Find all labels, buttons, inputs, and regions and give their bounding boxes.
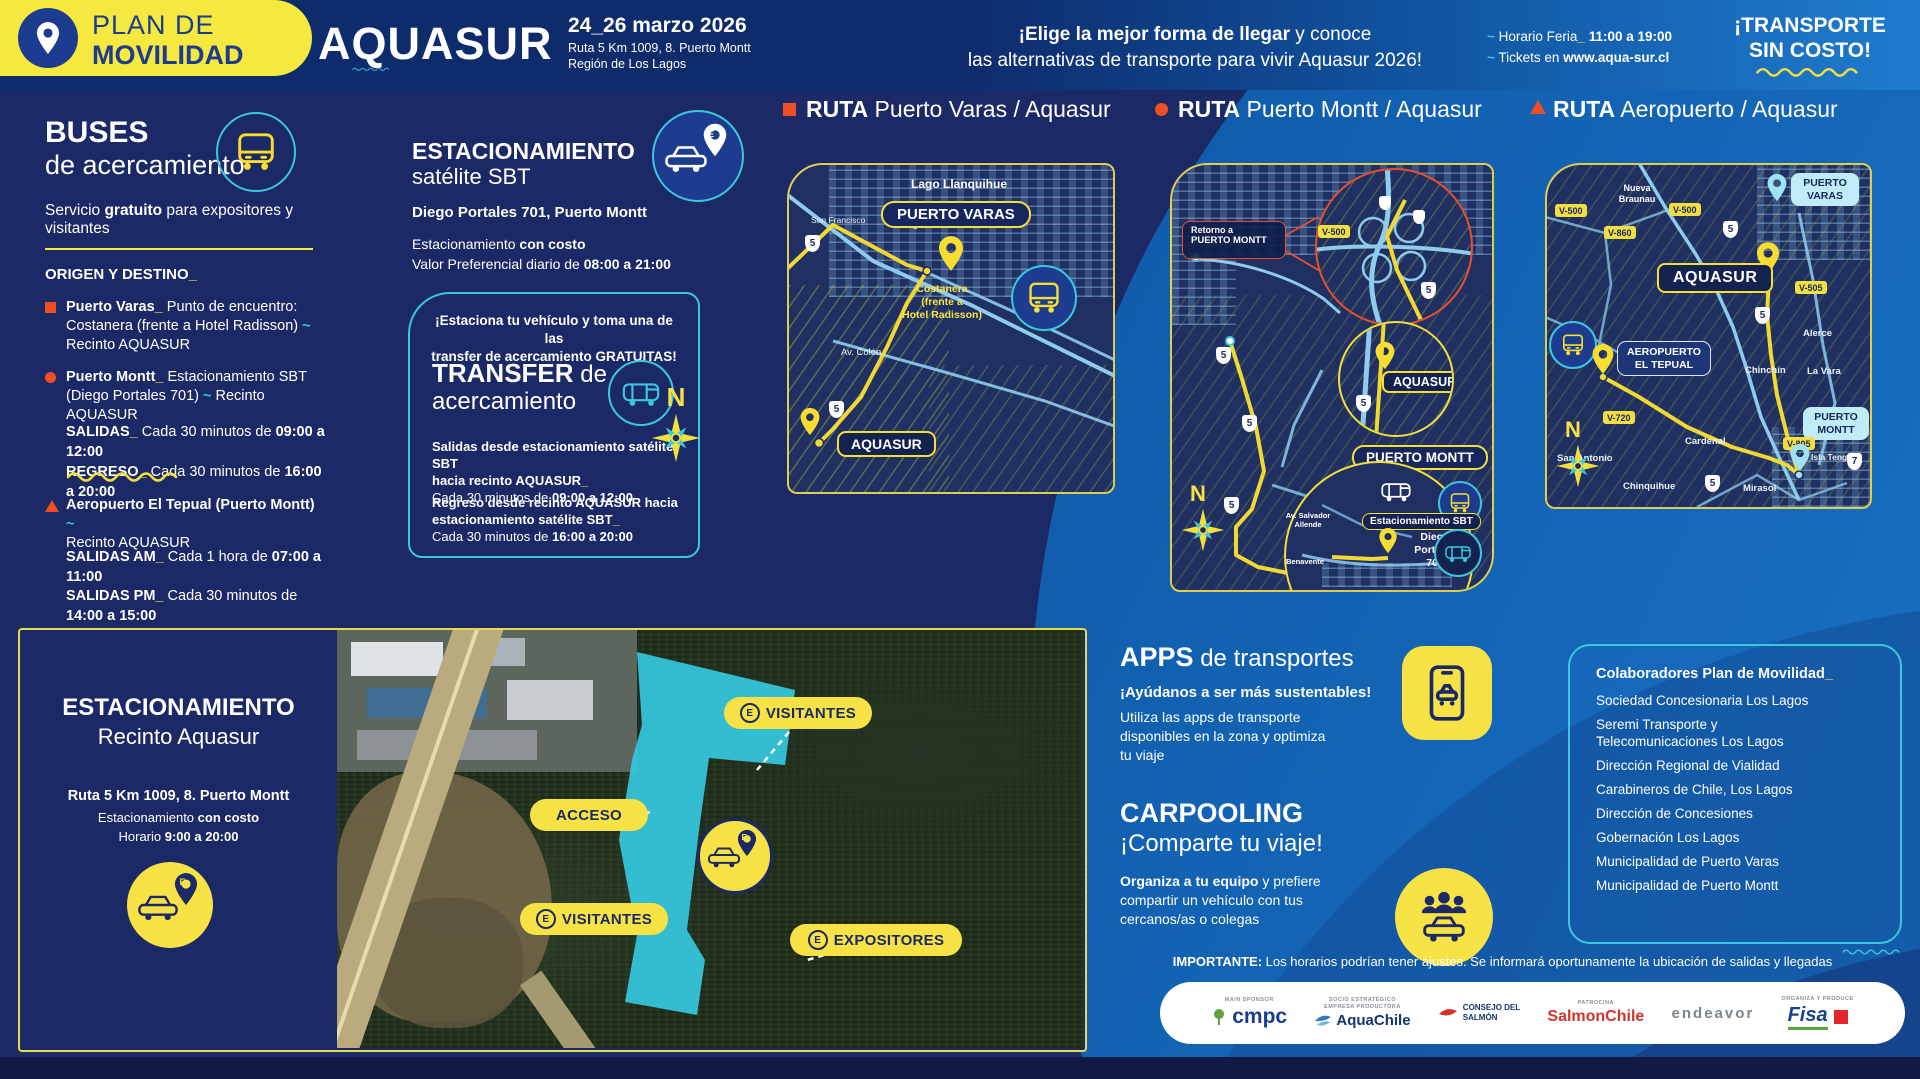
tilde: ~ (1487, 29, 1495, 44)
ap-2: EL TEPUAL (1635, 359, 1693, 371)
badge-line1: PLAN DE (92, 10, 215, 41)
transfer-title: TRANSFER de (432, 358, 607, 389)
sponsor-cmpc: MAIN SPONSOR cmpc (1211, 997, 1287, 1030)
sponsor-label: ORGANIZA Y PRODUCE (1782, 996, 1854, 1003)
carpool-icon (1395, 868, 1493, 966)
carp-bold: Organiza a tu equipo (1120, 873, 1258, 889)
buses-item-puerto-varas: Puerto Varas_ Punto de encuentro: Costan… (66, 298, 318, 355)
buses-schedule-1: SALIDAS_ Cada 30 minutos de 09:00 a 12:0… (66, 422, 326, 502)
map1-aquasur-pin-icon (799, 407, 821, 436)
pm-name: Puerto Montt (66, 369, 155, 385)
svc-pre: Servicio (45, 202, 104, 219)
tickets-url[interactable]: www.aqua-sur.cl (1563, 50, 1669, 65)
brand-wave-icon (352, 64, 392, 74)
transfer-de: de (574, 361, 607, 388)
bus-icon (216, 112, 296, 192)
park-subtitle: satélite SBT (412, 164, 531, 190)
tree-icon (1211, 1008, 1227, 1026)
compass-rose-icon (650, 412, 702, 464)
map1-puerto-varas-pill: PUERTO VARAS (881, 201, 1031, 228)
underscore: _ (130, 424, 138, 440)
tilde: ~ (302, 318, 310, 334)
s2-time: 16:00 a 20:00 (552, 529, 633, 544)
list-item: Municipalidad de Puerto Varas (1596, 853, 1874, 870)
salidas-pm-text: Cada 30 minutos de (164, 588, 298, 604)
carpooling-body: Organiza a tu equipo y prefiere comparti… (1120, 872, 1370, 929)
list-item: Dirección Regional de Vialidad (1596, 757, 1874, 774)
transfer-sched-2: Regreso desde recinto AQUASUR hacia esta… (432, 494, 682, 545)
costanera-1: Costanera (916, 283, 967, 295)
map1-compass-n: N (648, 382, 704, 413)
route2-header: RUTA Puerto Montt / Aquasur (1178, 96, 1482, 123)
hor-bold: 9:00 a 20:00 (165, 829, 239, 844)
map3-cardenal: Cardenal (1685, 436, 1726, 447)
event-address-2: Región de Los Lagos (568, 57, 686, 71)
map1-aquasur-pill: AQUASUR (837, 431, 936, 457)
horario-label: Horario Feria (1495, 29, 1578, 44)
event-date: 24_26 marzo 2026 (568, 14, 747, 38)
recinto-cost: Estacionamiento con costo (20, 810, 337, 825)
underscore: _ (155, 588, 163, 604)
colab-title-text: Colaboradores Plan de Movilidad (1596, 666, 1825, 682)
s2-line2: estacionamiento satélite SBT (432, 512, 613, 527)
map3-compass-n: N (1565, 417, 1581, 443)
apps-title: APPS de transportes (1120, 642, 1354, 673)
ruta2-name: Puerto Montt / Aquasur (1240, 96, 1482, 122)
map2-allende-label: Av. SalvadorAllende (1276, 511, 1340, 529)
map3-puerto-varas-pill: PUERTOVARAS (1791, 173, 1859, 206)
underscore: _ (189, 266, 197, 283)
s1-line2: hacia recinto AQUASUR (432, 473, 581, 488)
park-price: Valor Preferencial diario de 08:00 a 21:… (412, 256, 671, 272)
map3-aeropuerto-pill: AEROPUERTOEL TEPUAL (1617, 341, 1711, 376)
compass-rose-icon (1555, 443, 1601, 489)
map3-alerce: Alerce (1803, 328, 1832, 339)
footer-bar (0, 1057, 1920, 1079)
map2-compass-n: N (1190, 481, 1206, 507)
tagline-bold: ¡Elige la mejor forma de llegar (1019, 24, 1290, 45)
map1-costanera-label: Costanera(frente aHotel Radisson) (887, 283, 997, 322)
tilde: ~ (66, 516, 74, 532)
carpooling-title: CARPOOLING (1120, 798, 1303, 829)
parking-e: E (742, 833, 747, 842)
sponsor-strip: MAIN SPONSOR cmpc SOCIO ESTRATÉGICOEMPRE… (1160, 982, 1905, 1044)
costanera-2: (frente a (921, 296, 962, 308)
free-transport-banner: ¡TRANSPORTE SIN COSTO! (1710, 13, 1910, 63)
wavy-underline-icon (1738, 66, 1883, 77)
list-item: Carabineros de Chile, Los Lagos (1596, 781, 1874, 798)
header-info: ~ Horario Feria_ 11:00 a 19:00 ~ Tickets… (1487, 26, 1672, 68)
e-circle-icon: E (536, 909, 556, 929)
ap-1: AEROPUERTO (1627, 346, 1701, 358)
event-address-1: Ruta 5 Km 1009, 8. Puerto Montt (568, 41, 751, 55)
map1-san-francisco: San Francisco (811, 215, 865, 225)
hor-pre: Horario (119, 829, 165, 844)
route3-header: RUTA Aeropuerto / Aquasur (1553, 96, 1838, 123)
map-puerto-varas: Lago Llanquihue PUERTO VARAS Costanera(f… (787, 163, 1115, 494)
consejo-2: SALMÓN (1463, 1013, 1498, 1022)
underscore: _ (155, 299, 163, 315)
fish-icon (1314, 1013, 1332, 1029)
route1-bullet (783, 103, 796, 116)
apps-b3: tu viaje (1120, 747, 1164, 763)
tickets-label: Tickets en (1495, 50, 1563, 65)
buses-item-puerto-montt: Puerto Montt_ Estacionamiento SBT (Diego… (66, 368, 318, 425)
pm-1: PUERTO (1814, 411, 1858, 423)
transfer-bold: TRANSFER (432, 358, 574, 388)
satellite-photo: EVISITANTES ACCESO EVISITANTES EEXPOSITO… (337, 630, 1083, 1048)
park-cost: Estacionamiento con costo (412, 236, 586, 252)
s1-line1: Salidas desde estacionamiento satélite S… (432, 439, 673, 471)
badge-line2: MOVILIDAD (92, 40, 244, 71)
poster: PLAN DE MOVILIDAD AQUASUR 24_26 marzo 20… (0, 0, 1920, 1079)
ruta-label: RUTA (1178, 96, 1240, 122)
gl-events-mark (1834, 1010, 1848, 1024)
car-parking-icon: E (652, 110, 744, 202)
tagline-rest: y conoce (1290, 24, 1371, 45)
ruta-label: RUTA (806, 96, 868, 122)
pill-visitantes-1: EVISITANTES (724, 697, 872, 729)
cmpc-logo: cmpc (1232, 1005, 1287, 1029)
header: PLAN DE MOVILIDAD AQUASUR 24_26 marzo 20… (0, 0, 1920, 90)
sponsor-label: SOCIO ESTRATÉGICO (1329, 997, 1396, 1003)
sponsor-label: MAIN SPONSOR (1225, 997, 1274, 1004)
apps-light: de transportes (1194, 645, 1354, 672)
costanera-3: Hotel Radisson) (902, 309, 982, 321)
fisa-logo: Fisa (1788, 1004, 1828, 1030)
list-item: Gobernación Los Lagos (1596, 829, 1874, 846)
apps-lead: ¡Ayúdanos a ser más sustentables! (1120, 684, 1371, 701)
square-bullet (45, 302, 56, 313)
apps-b2: disponibles en la zona y optimiza (1120, 728, 1325, 744)
transfer-subtitle: acercamiento (432, 388, 576, 416)
cost-bold: con costo (519, 236, 585, 252)
plan-movilidad-badge: PLAN DE MOVILIDAD (0, 0, 312, 76)
endeavor-logo: endeavor (1672, 1005, 1755, 1022)
photo-parking-icon: E (697, 818, 773, 894)
apps-bold: APPS (1120, 642, 1194, 672)
sponsor-label: PATROCINA (1578, 1000, 1614, 1007)
origin-destino-label: ORIGEN Y DESTINO_ (45, 266, 197, 283)
v500-shield: V-500 (1555, 204, 1587, 217)
visitantes-label: VISITANTES (766, 705, 856, 722)
park-title: ESTACIONAMIENTO (412, 138, 635, 165)
allende-1: Av. Salvador (1286, 511, 1331, 520)
visitantes-label: VISITANTES (562, 911, 652, 928)
v500-shield: V-500 (1669, 203, 1701, 216)
aquachile-logo: AquaChile (1336, 1012, 1410, 1029)
price-bold: 08:00 a 21:00 (584, 256, 671, 272)
brand-wordmark: AQUASUR (318, 18, 553, 70)
origin-text: ORIGEN Y DESTINO (45, 266, 189, 283)
recinto-horario: Horario 9:00 a 20:00 (20, 829, 337, 844)
free-line2: SIN COSTO! (1749, 39, 1871, 62)
list-item: Municipalidad de Puerto Montt (1596, 877, 1874, 894)
consejo-1: CONSEJO DEL (1463, 1003, 1520, 1012)
colaboradores-title: Colaboradores Plan de Movilidad_ (1596, 666, 1874, 682)
carp-b3: cercanos/as o colegas (1120, 911, 1259, 927)
horario-value: 11:00 a 19:00 (1585, 29, 1672, 44)
colaboradores-box: Colaboradores Plan de Movilidad_ Socieda… (1568, 644, 1902, 944)
nb-1: Nueva (1623, 183, 1650, 193)
list-item: Seremi Transporte y Telecomunicaciones L… (1596, 716, 1826, 750)
triangle-bullet (45, 500, 59, 512)
pv-pin-icon (1766, 173, 1788, 202)
location-pin-icon (18, 8, 78, 68)
apps-body: Utiliza las apps de transporte disponibl… (1120, 708, 1325, 765)
importante-bold: IMPORTANTE: (1173, 954, 1262, 969)
pill-acceso: ACCESO (530, 799, 648, 831)
tagline-line2: las alternativas de transporte para vivi… (968, 50, 1422, 71)
ruta-label: RUTA (1553, 96, 1615, 122)
colaboradores-list: Sociedad Concesionaria Los Lagos Seremi … (1596, 692, 1874, 894)
map-aeropuerto: NuevaBraunau V-500 V-500 V-860 5 PUERTOV… (1545, 163, 1872, 509)
pv-name: Puerto Varas (66, 299, 155, 315)
map1-av-colon: Av. Colón (841, 347, 881, 358)
buses-subtitle: de acercamiento (45, 150, 245, 181)
expositores-label: EXPOSITORES (834, 932, 945, 949)
nb-2: Braunau (1619, 194, 1656, 204)
price-pre: Valor Preferencial diario de (412, 256, 584, 272)
buses-item-aeropuerto: Aeropuerto El Tepual (Puerto Montt) ~ Re… (66, 496, 326, 553)
underscore: _ (156, 549, 164, 565)
cost-pre: Estacionamiento (412, 236, 519, 252)
salmon-icon (1438, 1005, 1458, 1021)
parking-e: E (180, 877, 186, 887)
sponsor-label: EMPRESA PRODUCTORA (1324, 1004, 1401, 1010)
pill-visitantes-2: EVISITANTES (520, 903, 668, 935)
sponsor-consejo: CONSEJO DELSALMÓN (1438, 1003, 1520, 1023)
map1-bus-icon (1011, 265, 1077, 331)
sponsor-salmonchile: PATROCINA SalmonChile (1547, 1000, 1644, 1027)
apps-b1: Utiliza las apps de transporte (1120, 709, 1301, 725)
park-address: Diego Portales 701, Puerto Montt (412, 204, 647, 221)
ruta1-name: Puerto Varas / Aquasur (868, 96, 1111, 122)
map-puerto-montt: Retorno a PUERTO MONTT 5 V-500 (1170, 163, 1494, 592)
salmonchile-logo: SalmonChile (1547, 1008, 1644, 1026)
map3-nueva-braunau: NuevaBraunau (1599, 183, 1675, 205)
map1-pin-icon (937, 235, 965, 272)
v720-shield: V-720 (1603, 411, 1635, 424)
circle-bullet (45, 372, 56, 383)
v505-shield: V-505 (1795, 281, 1827, 294)
buses-title: BUSES (45, 116, 148, 150)
list-item: Dirección de Concesiones (1596, 805, 1874, 822)
header-tagline: ¡Elige la mejor forma de llegar y conoce… (950, 22, 1440, 74)
recinto-parking-icon: E (127, 862, 213, 948)
pv-1: PUERTO (1803, 177, 1847, 189)
salidas-label: SALIDAS (66, 424, 130, 440)
salidas-pm-label: SALIDAS PM (66, 588, 155, 604)
sponsor-fisa: ORGANIZA Y PRODUCE Fisa (1782, 996, 1854, 1031)
e-circle-icon: E (740, 703, 760, 723)
tilde: ~ (1487, 50, 1495, 65)
map3-lavara: La Vara (1807, 366, 1841, 377)
map3-bus-icon (1549, 321, 1597, 369)
underscore: _ (581, 473, 588, 488)
carp-rest: y prefiere (1258, 873, 1320, 889)
wavy-divider-icon (66, 470, 186, 482)
map3-chinquihue: Chinquihue (1623, 481, 1675, 492)
pm-2: MONTT (1817, 424, 1854, 436)
recinto-panel: ESTACIONAMIENTO Recinto Aquasur Ruta 5 K… (18, 628, 1087, 1052)
underscore: _ (613, 512, 620, 527)
map3-mirasol: Mirasol (1743, 483, 1776, 494)
e-circle-icon: E (808, 930, 828, 950)
s2-line1: Regreso desde recinto AQUASUR hacia (432, 495, 678, 510)
map2-van-icon (1380, 479, 1412, 503)
map2-benavente-label: Benavente (1286, 557, 1324, 566)
ruta3-name: Aeropuerto / Aquasur (1615, 96, 1838, 122)
callout-1: ¡Estaciona tu vehículo y toma una de las (435, 313, 673, 346)
air-name: Aeropuerto El Tepual (Puerto Montt) (66, 497, 315, 513)
carp-b2: compartir un vehículo con tus (1120, 892, 1303, 908)
compass-rose-icon (1180, 507, 1226, 553)
svc-bold: gratuito (104, 202, 162, 219)
s2-text: Cada 30 minutos de (432, 529, 552, 544)
pv-dest: Recinto AQUASUR (66, 337, 190, 353)
v860-shield: V-860 (1604, 226, 1636, 239)
pv-2: VARAS (1807, 190, 1843, 202)
recinto-address: Ruta 5 Km 1009, 8. Puerto Montt (20, 788, 337, 804)
importante-rest: Los horarios podrían tener ajustes. Se i… (1262, 954, 1832, 969)
salidas-am-label: SALIDAS AM (66, 549, 156, 565)
salidas-text: Cada 30 minutos de (138, 424, 276, 440)
allende-2: Allende (1294, 520, 1321, 529)
carpooling-subtitle: ¡Comparte tu viaje! (1120, 830, 1323, 858)
route1-header: RUTA Puerto Varas / Aquasur (806, 96, 1111, 123)
sbt-pin-icon (1378, 527, 1398, 554)
underscore: _ (1825, 666, 1833, 682)
recinto-subtitle: Recinto Aquasur (20, 724, 337, 750)
list-item: Sociedad Concesionaria Los Lagos (1596, 692, 1874, 709)
sponsor-aquachile: SOCIO ESTRATÉGICOEMPRESA PRODUCTORA Aqua… (1314, 997, 1410, 1030)
map3-chinchin: Chinchín (1745, 365, 1786, 376)
pill-expositores: EEXPOSITORES (790, 924, 962, 956)
map2-transfer-icon (1434, 529, 1482, 577)
route2-bullet (1155, 103, 1168, 116)
map3-aquasur-pill: AQUASUR (1657, 263, 1773, 293)
underscore: _ (1577, 29, 1585, 44)
route3-bullet (1530, 100, 1546, 114)
aeropuerto-pin-icon (1591, 343, 1615, 375)
salidas-am-text: Cada 1 hora de (164, 549, 272, 565)
recinto-title: ESTACIONAMIENTO (20, 694, 337, 722)
sponsor-endeavor: endeavor (1672, 1005, 1755, 1022)
buses-service-note: Servicio gratuito para expositores y vis… (45, 202, 313, 250)
cost-bold: con costo (198, 810, 259, 825)
importante-note: IMPORTANTE: Los horarios podrían tener a… (1095, 954, 1910, 969)
map1-lago: Lago Llanquihue (879, 177, 1039, 191)
transport-app-icon (1402, 646, 1492, 740)
pm-pin-icon (1789, 443, 1811, 472)
cost-pre: Estacionamiento (98, 810, 198, 825)
free-line1: ¡TRANSPORTE (1734, 14, 1886, 37)
parking-e: E (708, 129, 714, 139)
acceso-label: ACCESO (556, 807, 622, 824)
map3-puerto-montt-pill: PUERTOMONTT (1803, 407, 1869, 440)
salidas-pm-time: 14:00 a 15:00 (66, 608, 156, 624)
